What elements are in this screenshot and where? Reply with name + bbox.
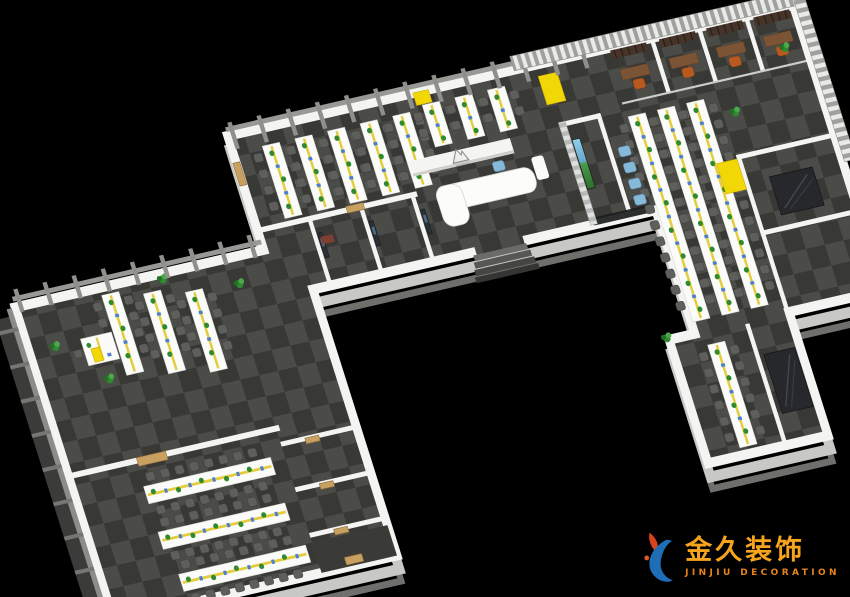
office-render-canvas: 金久装饰 JINJIU DECORATION xyxy=(0,0,850,597)
brand-name-en: JINJIU DECORATION xyxy=(685,568,840,578)
floorplan-svg xyxy=(0,0,850,597)
brand-text: 金久装饰 JINJIU DECORATION xyxy=(685,537,840,578)
watermark: 金久装饰 JINJIU DECORATION xyxy=(636,529,840,585)
jinjiu-logo-icon xyxy=(636,529,678,585)
brand-name-cn: 金久装饰 xyxy=(685,537,840,564)
